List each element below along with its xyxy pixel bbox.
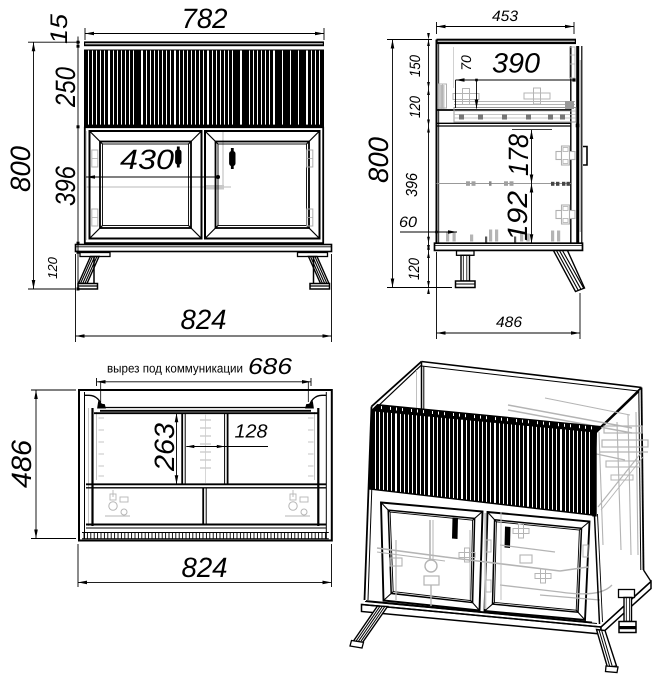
svg-text:486: 486: [6, 440, 37, 488]
svg-text:396: 396: [50, 166, 81, 206]
svg-text:800: 800: [363, 137, 394, 183]
svg-text:782: 782: [182, 3, 228, 34]
svg-text:120: 120: [45, 256, 60, 278]
svg-text:453: 453: [492, 8, 519, 25]
svg-text:128: 128: [235, 422, 268, 443]
svg-text:686: 686: [248, 353, 292, 379]
svg-text:120: 120: [406, 257, 423, 280]
svg-text:150: 150: [407, 54, 424, 77]
svg-text:60: 60: [399, 214, 418, 231]
svg-text:70: 70: [458, 55, 474, 71]
svg-text:263: 263: [149, 423, 180, 472]
svg-text:800: 800: [5, 146, 36, 192]
svg-text:486: 486: [496, 314, 523, 331]
svg-text:120: 120: [407, 95, 424, 118]
svg-text:390: 390: [492, 48, 540, 79]
svg-text:396: 396: [404, 173, 421, 197]
svg-text:вырез под коммуникации: вырез под коммуникации: [107, 362, 243, 376]
svg-text:178: 178: [503, 134, 534, 176]
svg-text:250: 250: [50, 67, 81, 108]
svg-text:192: 192: [502, 191, 533, 241]
svg-text:430: 430: [120, 144, 174, 175]
svg-text:15: 15: [46, 13, 73, 44]
svg-text:824: 824: [182, 552, 228, 583]
svg-text:824: 824: [181, 304, 227, 335]
